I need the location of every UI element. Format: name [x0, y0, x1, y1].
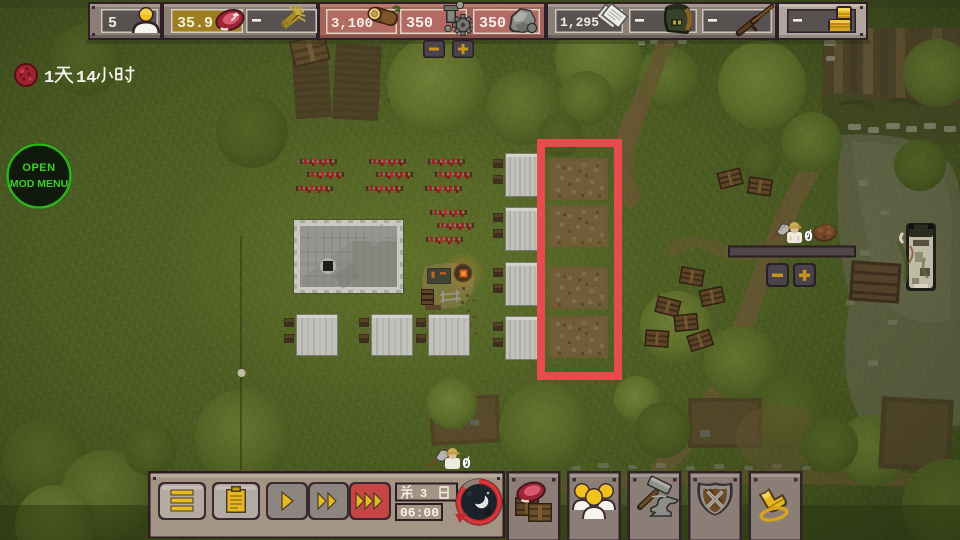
svg-text:MOD MENU: MOD MENU [10, 178, 68, 190]
svg-text:5: 5 [108, 15, 117, 32]
svg-text:0: 0 [462, 456, 471, 473]
svg-text:35.9: 35.9 [177, 15, 213, 32]
svg-text:14: 14 [76, 69, 96, 88]
svg-text:0: 0 [804, 229, 813, 246]
svg-text:1: 1 [44, 69, 54, 88]
svg-text:1,295: 1,295 [560, 15, 599, 30]
svg-text:350: 350 [479, 15, 506, 32]
svg-text:06:00: 06:00 [400, 506, 439, 521]
svg-text:350: 350 [406, 15, 433, 32]
svg-text:3: 3 [420, 487, 427, 501]
svg-text:OPEN: OPEN [22, 162, 55, 174]
svg-text:3,100: 3,100 [331, 16, 373, 32]
